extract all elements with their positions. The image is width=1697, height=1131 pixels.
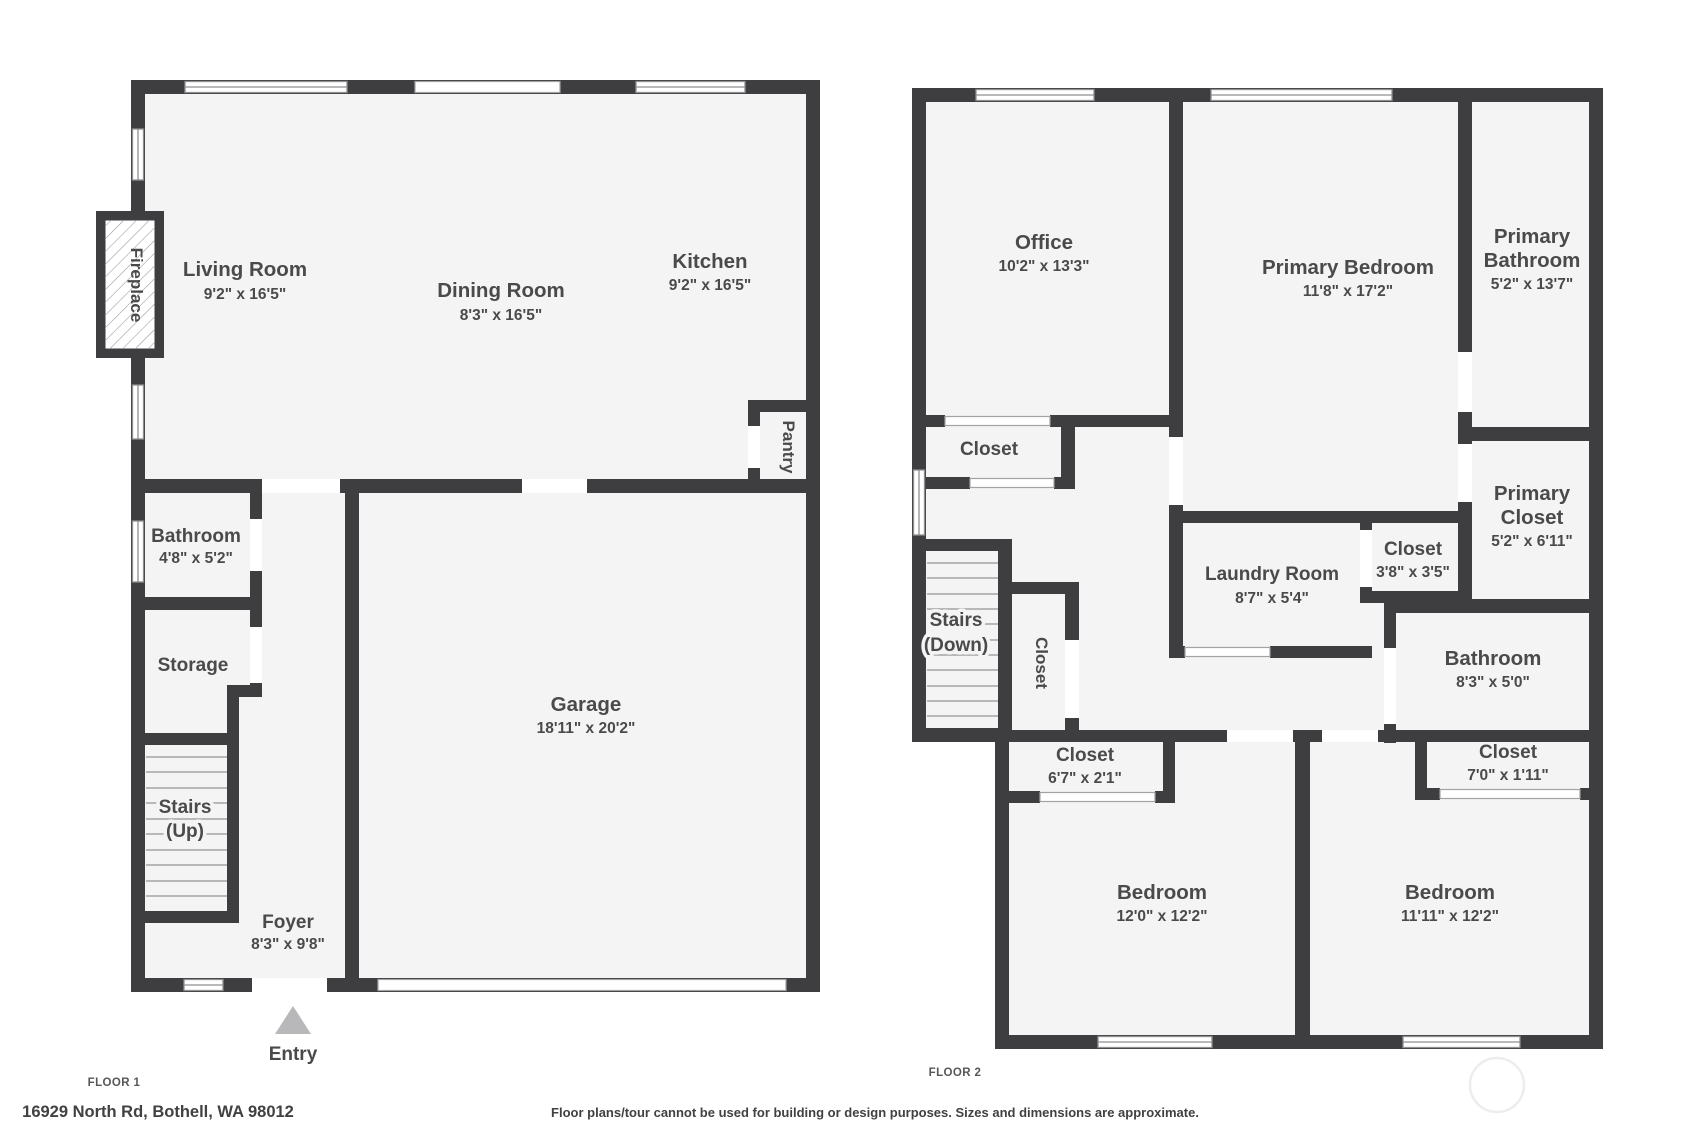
room-label-left-bedroom-closet: Closet: [1056, 745, 1115, 766]
disclaimer-text: Floor plans/tour cannot be used for buil…: [551, 1105, 1199, 1120]
room-dims-small-closet: 3'8" x 3'5": [1376, 564, 1450, 581]
room-dims-primary-bedroom: 11'8" x 17'2": [1303, 283, 1393, 300]
room-label-primary-bathroom-line2: Bathroom: [1484, 249, 1581, 272]
floor-plan-canvas: Fireplace Living Room 9'2" x 16'5" Dinin…: [0, 0, 1697, 1131]
room-label-right-bedroom: Bedroom: [1405, 881, 1495, 904]
room-dims-left-bedroom: 12'0" x 12'2": [1116, 908, 1207, 925]
floor-plan-page: Fireplace Living Room 9'2" x 16'5" Dinin…: [0, 0, 1697, 1131]
room-label-primary-closet-line2: Closet: [1501, 506, 1564, 529]
watermark-circle-icon: [1470, 1058, 1524, 1112]
room-dims-kitchen: 9'2" x 16'5": [669, 277, 751, 294]
floor1-plan: Fireplace Living Room 9'2" x 16'5" Dinin…: [96, 80, 820, 1065]
room-label-garage: Garage: [551, 693, 622, 716]
room-dims-right-bedroom: 11'11" x 12'2": [1401, 908, 1499, 925]
room-label-fireplace: Fireplace: [127, 248, 146, 323]
room-label-pantry: Pantry: [779, 421, 798, 474]
room-label-office-closet: Closet: [960, 439, 1019, 460]
property-address: 16929 North Rd, Bothell, WA 98012: [22, 1103, 294, 1121]
room-label-stairs-down: Stairs: [930, 610, 983, 631]
room-dims-dining-room: 8'3" x 16'5": [460, 307, 542, 324]
room-dims-bathroom1: 4'8" x 5'2": [159, 550, 233, 567]
room-label-primary-bathroom-line1: Primary: [1494, 225, 1571, 248]
entry-label: Entry: [269, 1044, 318, 1065]
floor2-plan: Office 10'2" x 13'3" Primary Bedroom 11'…: [912, 88, 1603, 1049]
room-label-stairs-up: Stairs: [159, 797, 212, 818]
floor2-title: FLOOR 2: [929, 1067, 982, 1079]
room-label-hall-closet: Closet: [1032, 637, 1051, 689]
room-label-left-bedroom: Bedroom: [1117, 881, 1207, 904]
room-dims-living-room: 9'2" x 16'5": [204, 286, 286, 303]
room-dims-right-bedroom-closet: 7'0" x 1'11": [1467, 767, 1549, 784]
room-dims-primary-bathroom: 5'2" x 13'7": [1491, 276, 1573, 293]
room-dims-primary-closet: 5'2" x 6'11": [1491, 533, 1573, 550]
room-label-storage: Storage: [158, 655, 229, 676]
room-label-primary-closet-line1: Primary: [1494, 482, 1571, 505]
floor1-title: FLOOR 1: [88, 1077, 141, 1089]
room-dims-garage: 18'11" x 20'2": [537, 720, 636, 737]
room-label-living-room: Living Room: [183, 258, 307, 281]
floor2-slab-upper: [912, 88, 1603, 742]
room-dims-left-bedroom-closet: 6'7" x 2'1": [1048, 770, 1122, 787]
entry-arrow-icon: [275, 1006, 311, 1034]
room-sub-stairs-up: (Up): [166, 821, 204, 842]
room-label-kitchen: Kitchen: [672, 250, 747, 273]
room-label-bathroom1: Bathroom: [151, 526, 241, 547]
room-label-primary-bedroom: Primary Bedroom: [1262, 256, 1434, 279]
room-label-foyer: Foyer: [262, 912, 314, 933]
room-dims-foyer: 8'3" x 9'8": [251, 936, 325, 953]
room-label-dining-room: Dining Room: [437, 279, 565, 302]
room-dims-laundry: 8'7" x 5'4": [1235, 590, 1309, 607]
room-sub-stairs-down: (Down): [924, 635, 988, 656]
room-label-office: Office: [1015, 231, 1073, 254]
footer: FLOOR 1 FLOOR 2 16929 North Rd, Bothell,…: [22, 1058, 1524, 1121]
room-dims-bathroom2: 8'3" x 5'0": [1456, 674, 1530, 691]
room-label-right-bedroom-closet: Closet: [1479, 742, 1538, 763]
room-dims-office: 10'2" x 13'3": [998, 258, 1089, 275]
room-label-bathroom2: Bathroom: [1445, 647, 1542, 670]
entry-marker: Entry: [269, 1006, 318, 1065]
fireplace: Fireplace: [96, 211, 164, 358]
room-label-laundry: Laundry Room: [1205, 564, 1339, 585]
room-label-small-closet: Closet: [1384, 539, 1443, 560]
